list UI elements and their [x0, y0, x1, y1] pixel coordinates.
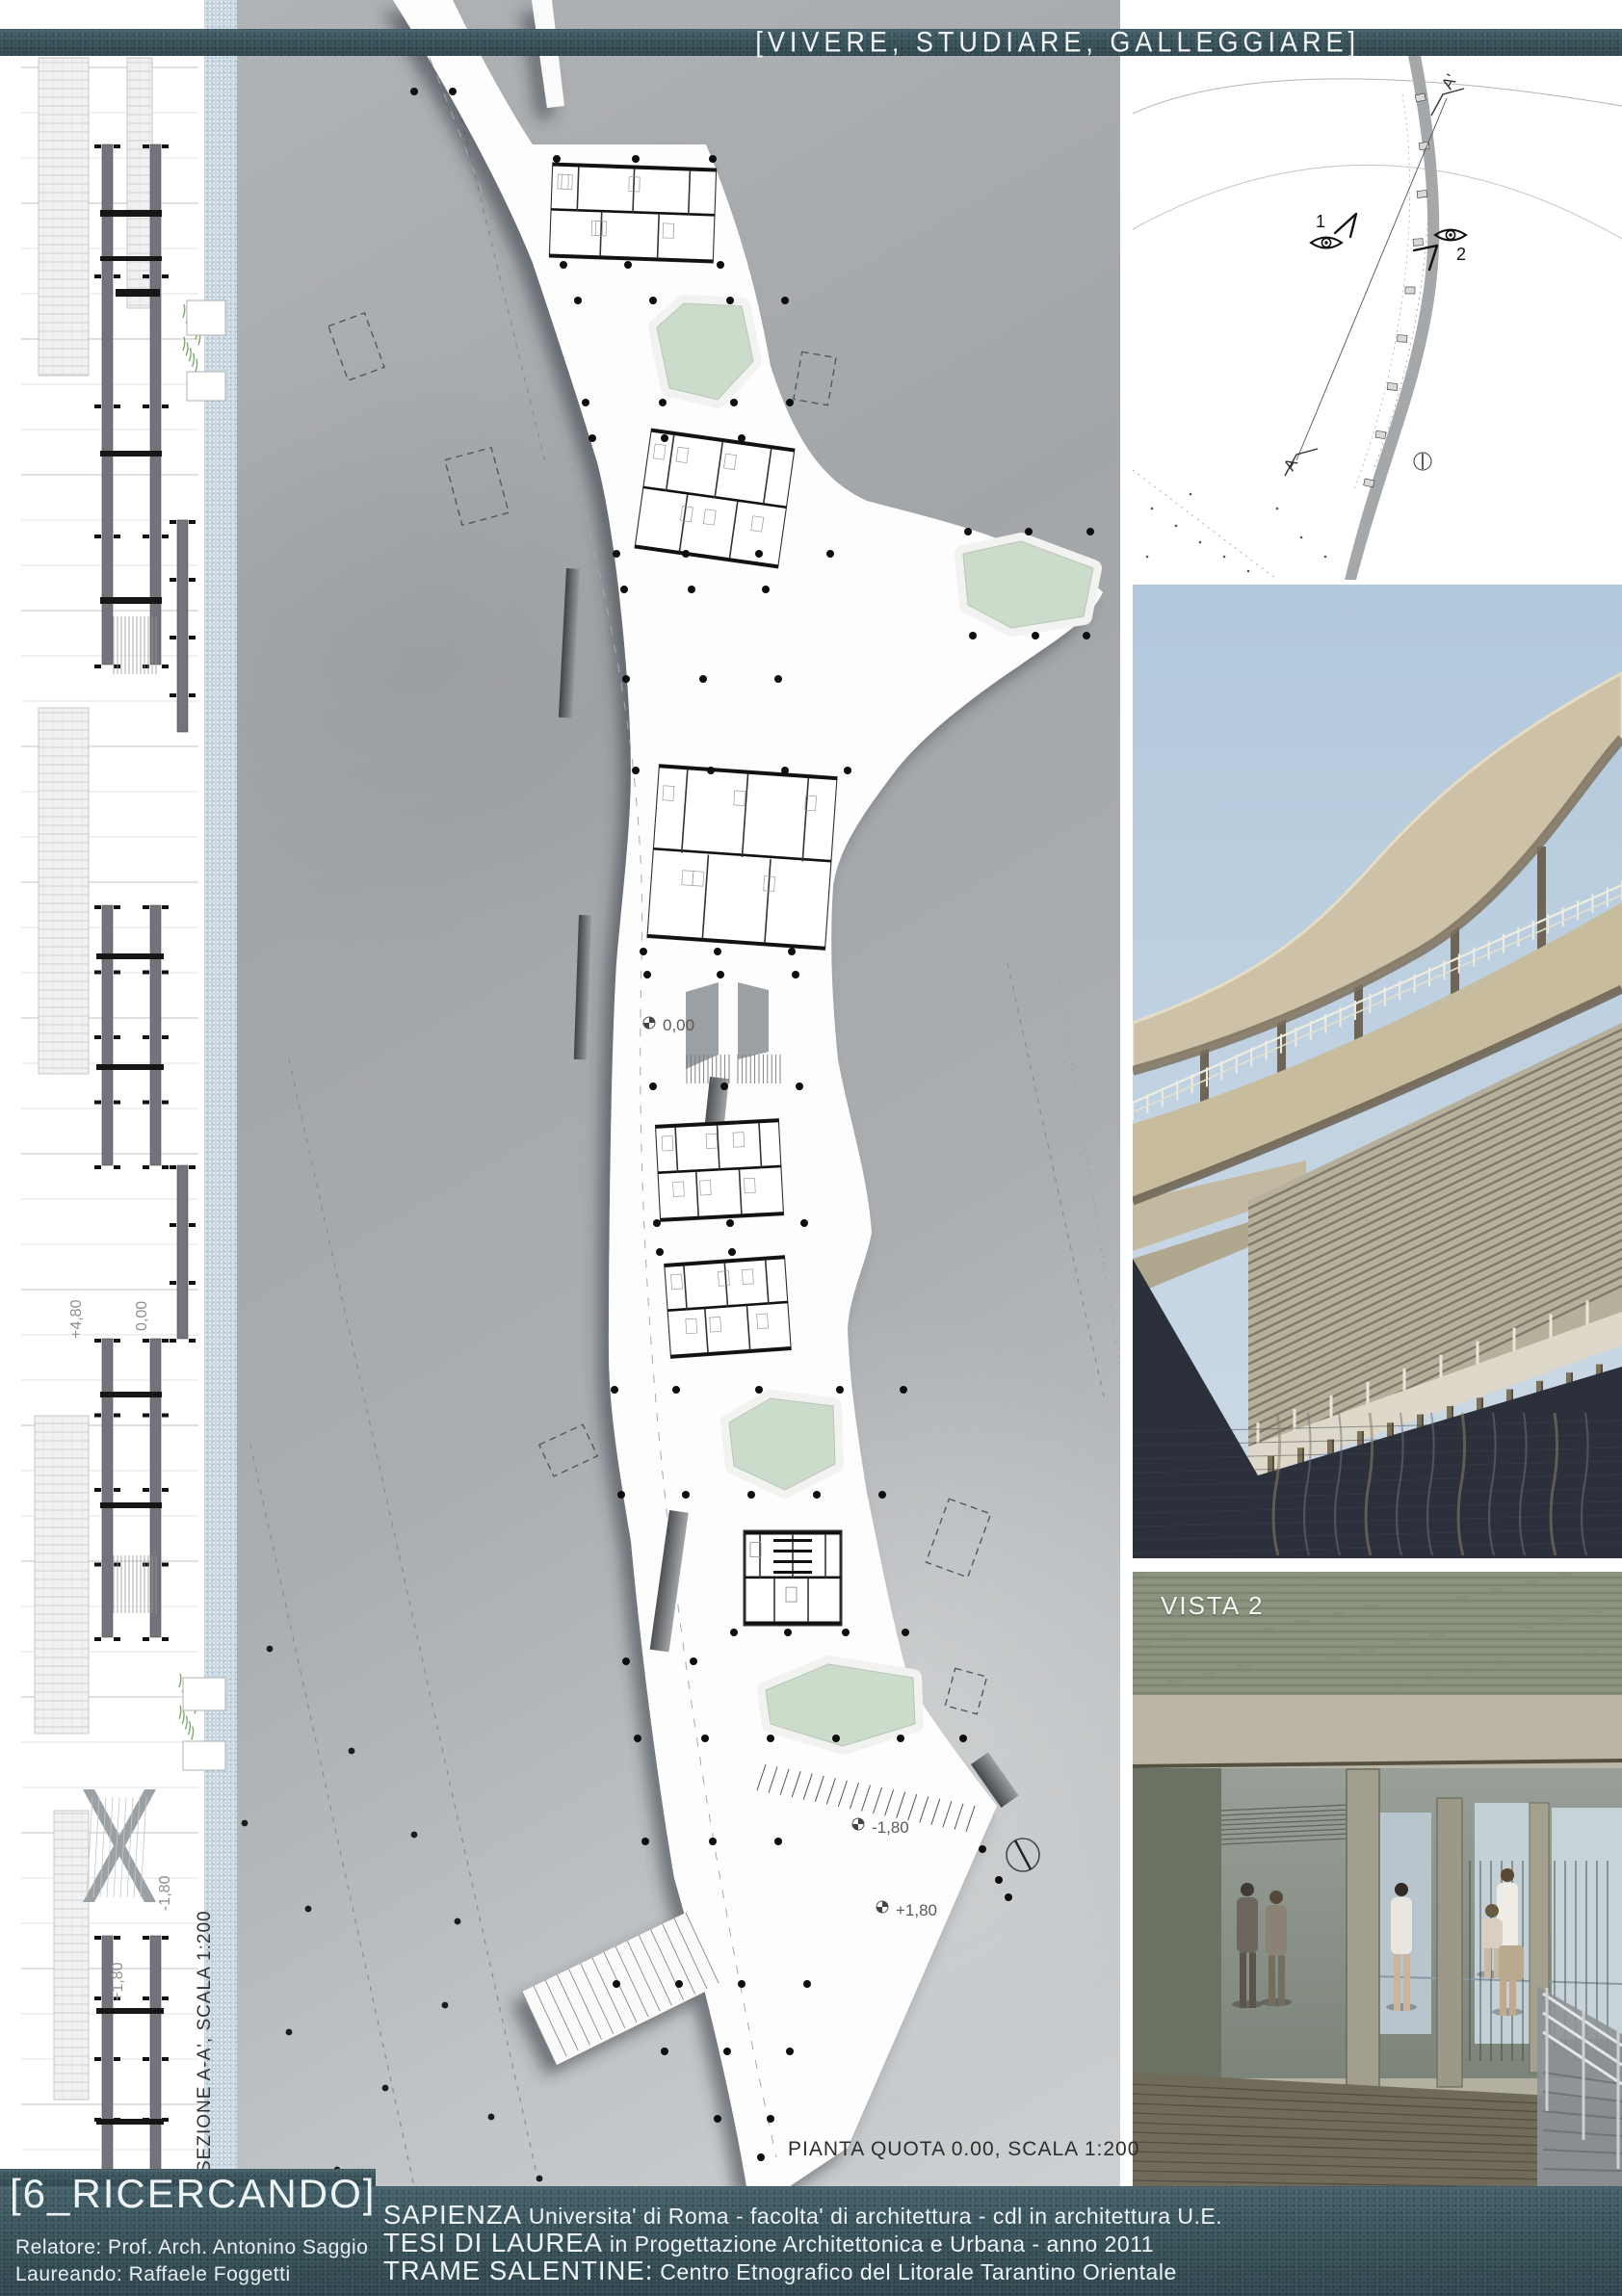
- thesis-line: TESI DI LAUREA in Progettazione Architet…: [383, 2228, 1154, 2258]
- level-label: -1,80: [157, 1875, 173, 1911]
- plan-room-block: [665, 1256, 792, 1358]
- plan-room-block: [647, 765, 837, 950]
- advisor-line: Relatore: Prof. Arch. Antonino Saggio: [15, 2236, 368, 2259]
- project-rest: Centro Etnografico del Litorale Tarantin…: [653, 2259, 1176, 2284]
- plan-room-block: [549, 163, 716, 263]
- student-line: Laureando: Raffaele Foggetti: [15, 2263, 291, 2286]
- university-name: SAPIENZA: [383, 2200, 522, 2230]
- level-label: 0,00: [134, 1301, 150, 1331]
- level-label: +1,80: [896, 1901, 937, 1919]
- plan-caption: PIANTA QUOTA 0.00, SCALA 1:200: [788, 2138, 1139, 2161]
- concrete-beam: [1133, 1695, 1622, 1768]
- section-drawing: +4,80 0,00 -1,80 +1,80: [0, 0, 237, 2186]
- level-label: -1,80: [872, 1818, 909, 1837]
- plan-room-block: [635, 429, 795, 568]
- plan-room-block: [655, 1119, 783, 1222]
- section-caption: SEZIONE A-A', SCALA 1:200: [195, 1910, 216, 2173]
- view2-number: 2: [1456, 245, 1466, 264]
- university-rest: Universita' di Roma - facolta' di archit…: [522, 2204, 1222, 2229]
- level-marker-icon: [852, 1818, 864, 1830]
- thesis-rest: in Progettazione Architettonica e Urbana…: [603, 2231, 1154, 2257]
- vista2-label: VISTA 2: [1161, 1591, 1264, 1621]
- chapter-title: [6_RICERCANDO]: [10, 2171, 376, 2217]
- interior-wall: [1133, 1761, 1221, 2078]
- project-line: TRAME SALENTINE: Centro Etnografico del …: [383, 2256, 1177, 2286]
- level-marker-icon: [643, 1017, 655, 1029]
- university-line: SAPIENZA Universita' di Roma - facolta' …: [383, 2200, 1222, 2231]
- floor-plan-drawing: 0,00 -1,80 +1,80: [237, 0, 1120, 2186]
- level-label: +4,80: [68, 1299, 85, 1339]
- thesis-board-page: +4,80 0,00 -1,80 +1,80 0,00 -1,80 +1,80: [0, 0, 1622, 2296]
- level-label: +1,80: [110, 1962, 126, 2001]
- vista2-render: [1133, 1572, 1622, 2186]
- level-label: 0,00: [663, 1016, 694, 1034]
- vista1-render: [1133, 585, 1622, 1558]
- project-name: TRAME SALENTINE:: [383, 2256, 653, 2285]
- site-plan-diagram: A' A 1 2: [1133, 56, 1622, 580]
- board-title: [VIVERE, STUDIARE, GALLEGGIARE]: [755, 27, 1360, 58]
- north-compass-icon: [1007, 1839, 1039, 1871]
- plan-room-block: [745, 1531, 841, 1625]
- view1-number: 1: [1316, 212, 1325, 231]
- thesis-name: TESI DI LAUREA: [383, 2228, 603, 2257]
- level-marker-icon: [876, 1901, 888, 1913]
